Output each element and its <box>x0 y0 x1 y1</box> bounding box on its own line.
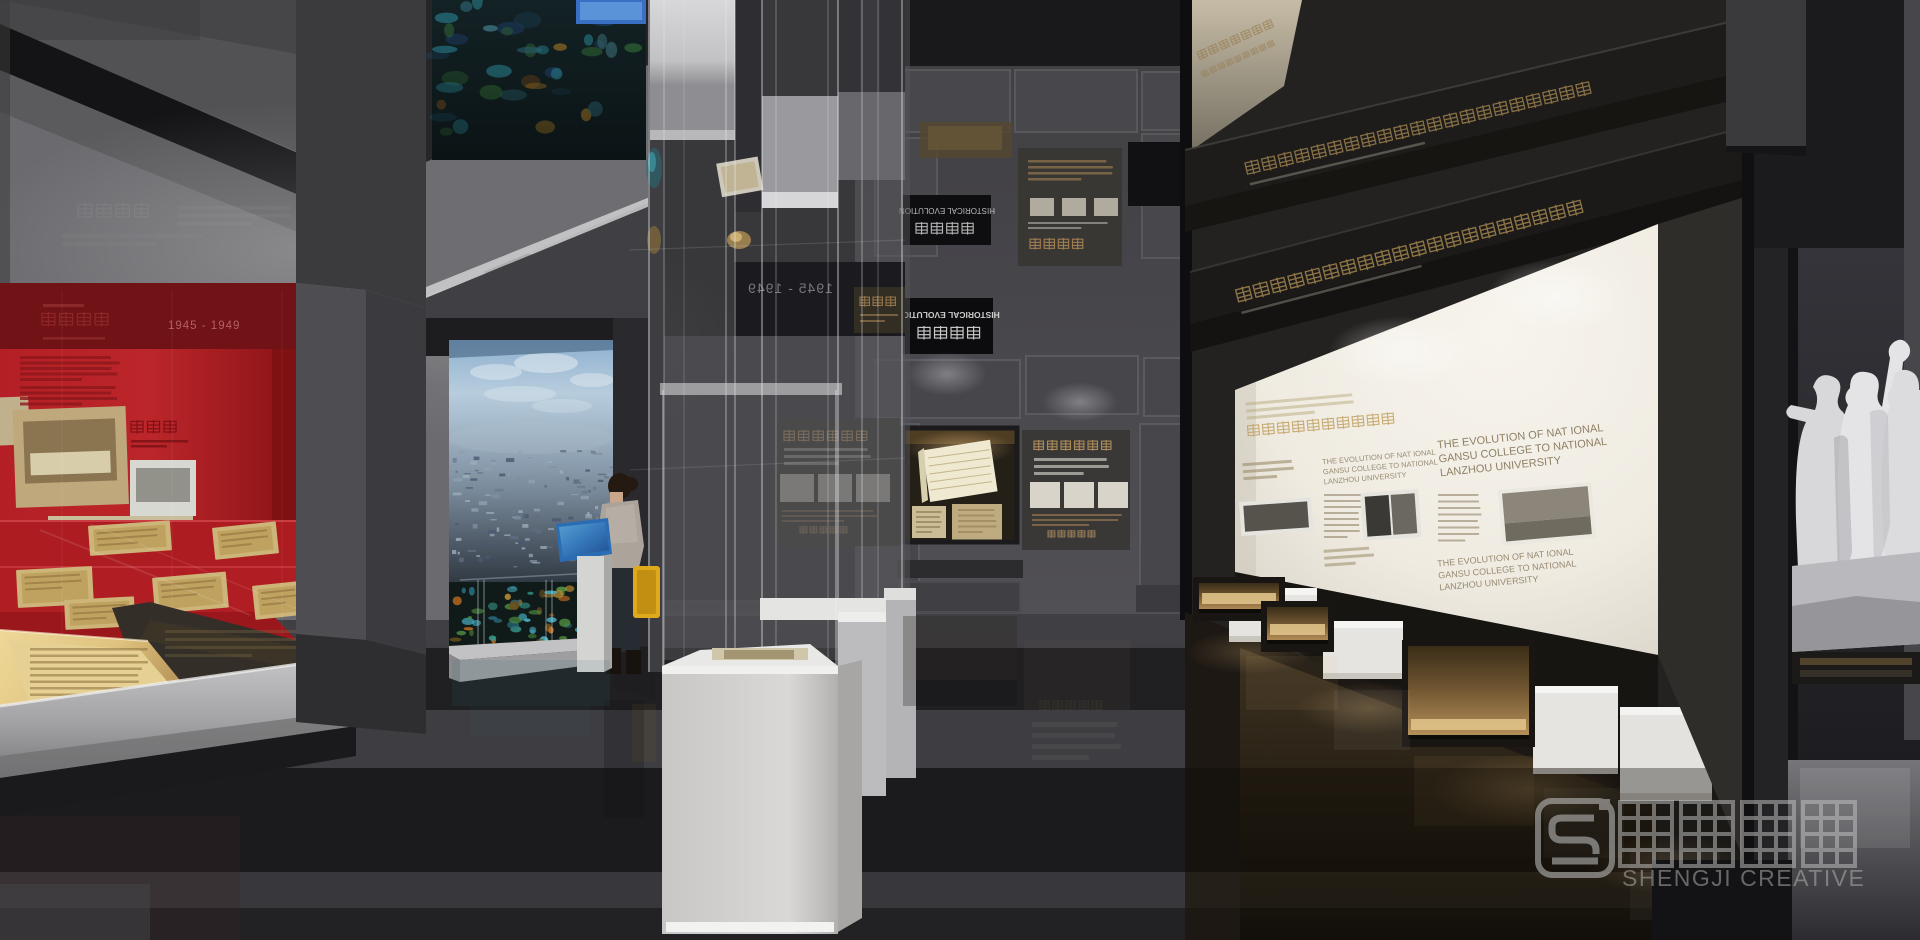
svg-text:SHENGJI CREATIVE: SHENGJI CREATIVE <box>1622 865 1865 891</box>
svg-text:1945 - 1949: 1945 - 1949 <box>747 280 833 296</box>
svg-text:HISTORICAL EVOLUTION: HISTORICAL EVOLUTION <box>899 206 995 215</box>
svg-text:1945 - 1949: 1945 - 1949 <box>168 320 240 332</box>
svg-text:HISTORICAL EVOLUTION: HISTORICAL EVOLUTION <box>896 310 1000 320</box>
